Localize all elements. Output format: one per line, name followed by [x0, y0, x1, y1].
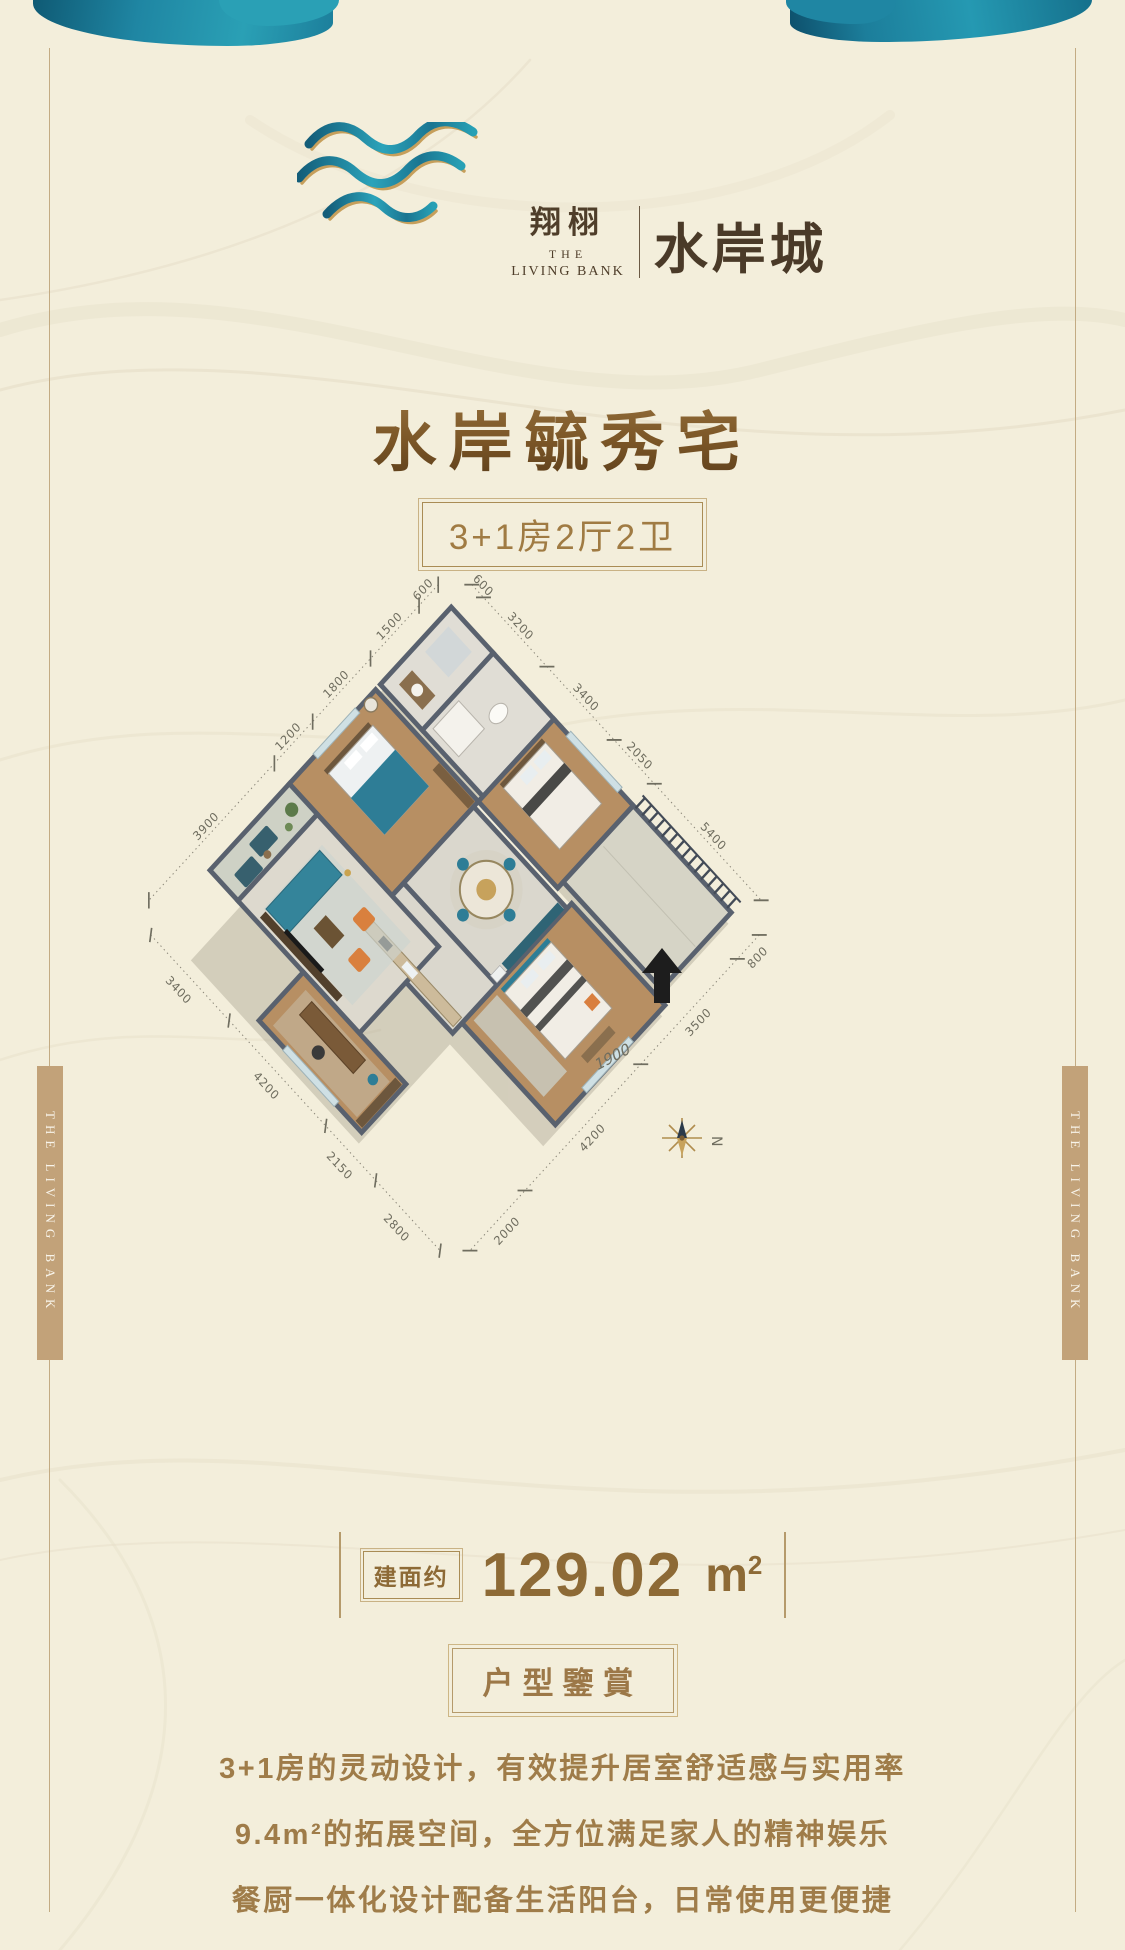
floorplan-iso-group: 600 3200 3400 2050 5400 600 1500 1800 12… [108, 548, 801, 1293]
floorplan-rendering: 600 3200 3400 2050 5400 600 1500 1800 12… [82, 548, 1042, 1293]
area-label: 建面约 [363, 1551, 460, 1599]
dim-label: 4200 [251, 1069, 283, 1103]
dim-label: 1200 [272, 719, 304, 753]
compass-icon: N [662, 1118, 724, 1158]
poster-page: THE LIVING BANK THE LIVING BANK [0, 0, 1125, 1950]
brand-name-en-line1: THE [549, 247, 587, 262]
built-area-row: 建面约 129.02 m2 [0, 1532, 1125, 1618]
description-line: 3+1房的灵动设计，有效提升居室舒适感与实用率 [0, 1736, 1125, 1802]
area-unit: m2 [705, 1548, 762, 1603]
dim-label: 3200 [505, 609, 537, 643]
dim-label: 800 [745, 943, 771, 971]
area-divider-right [784, 1532, 786, 1618]
wave-logo-icon [297, 122, 505, 244]
description-block: 3+1房的灵动设计，有效提升居室舒适感与实用率 9.4m²的拓展空间，全方位满足… [0, 1736, 1125, 1934]
description-line: 9.4m²的拓展空间，全方位满足家人的精神娱乐 [0, 1802, 1125, 1868]
teal-brush-top-left [33, 0, 333, 46]
dim-label: 5400 [698, 819, 730, 853]
logo-divider [639, 206, 640, 278]
brand-text-block: 翔栩 THE LIVING BANK [511, 197, 624, 280]
dim-label: 1500 [374, 609, 406, 643]
brand-name-en-line2: LIVING BANK [511, 264, 624, 280]
section-badge: 户型鑒賞 [452, 1648, 674, 1713]
area-value: 129.02 [482, 1540, 684, 1611]
brand-logo: 翔栩 THE LIVING BANK 水岸城 [0, 122, 1125, 280]
dim-label: 600 [410, 575, 436, 603]
dim-label: 2800 [381, 1211, 413, 1245]
compass-north-label: N [708, 1136, 724, 1146]
brand-name-cn: 翔栩 [530, 197, 606, 242]
left-side-tag: THE LIVING BANK [37, 1066, 63, 1360]
dim-label: 2000 [491, 1214, 523, 1248]
dim-label: 4200 [577, 1120, 609, 1154]
page-title: 水岸毓秀宅 [0, 392, 1125, 484]
right-side-tag: THE LIVING BANK [1062, 1066, 1088, 1360]
teal-brush-top-right [790, 0, 1092, 42]
description-line: 餐厨一体化设计配备生活阳台，日常使用更便捷 [0, 1868, 1125, 1934]
layout-badge: 3+1房2厅2卫 [422, 502, 703, 567]
area-divider-left [339, 1532, 341, 1618]
dim-label: 3400 [570, 680, 602, 714]
dim-label: 3500 [682, 1005, 714, 1039]
project-name: 水岸城 [654, 222, 828, 276]
dim-label: 600 [470, 571, 496, 599]
